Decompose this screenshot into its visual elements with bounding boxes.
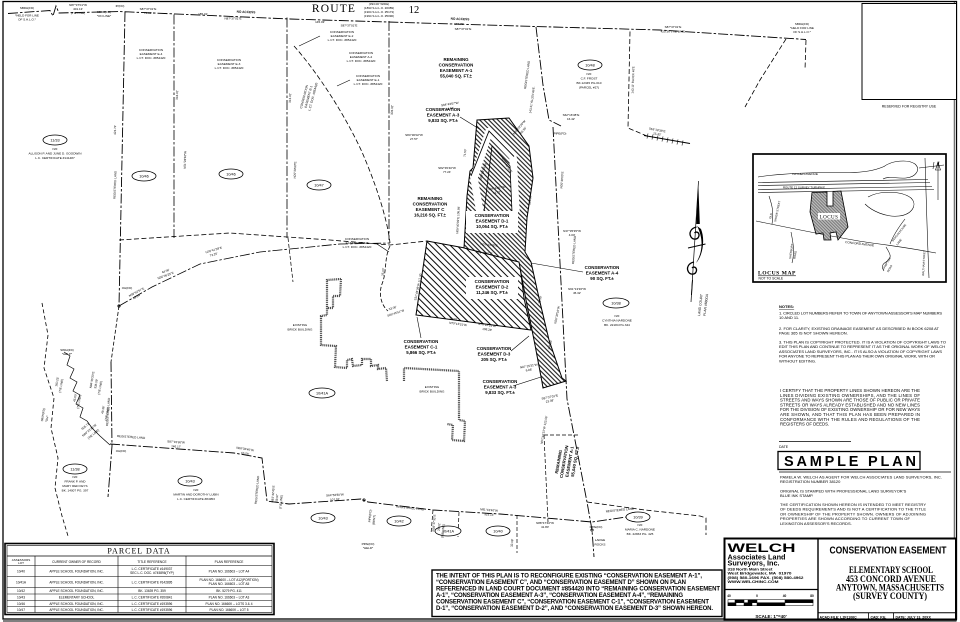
svg-text:10/47: 10/47 <box>314 184 324 188</box>
svg-text:THE INTENT OF THIS PLAN IS TO: THE INTENT OF THIS PLAN IS TO RECONFIGUR… <box>436 574 702 580</box>
svg-text:77.24′: 77.24′ <box>443 170 452 174</box>
svg-text:EASEMENT C-1: EASEMENT C-1 <box>405 345 438 350</box>
svg-text:LARGE: LARGE <box>595 538 606 542</box>
svg-text:25.00′: 25.00′ <box>381 267 386 276</box>
svg-text:BK. 5279 PG. 411: BK. 5279 PG. 411 <box>216 589 242 593</box>
svg-text:NO ACCESS: NO ACCESS <box>451 17 470 22</box>
svg-text:L.C. CERTIFICATE #193596: L.C. CERTIFICATE #193596 <box>132 608 173 612</box>
svg-text:420.36′ (TIE LINE): 420.36′ (TIE LINE) <box>661 30 686 34</box>
svg-text:318.01′: 318.01′ <box>175 90 179 100</box>
svg-text:PIPE(FD): PIPE(FD) <box>554 132 567 136</box>
svg-text:80: 80 <box>810 594 814 598</box>
svg-text:10/46: 10/46 <box>226 173 236 177</box>
svg-text:ROUTE: ROUTE <box>312 3 356 15</box>
svg-text:10/43: 10/43 <box>318 517 328 521</box>
svg-text:(PARCEL #27): (PARCEL #27) <box>579 86 599 90</box>
svg-text:DATE: JULY 13, 20XX: DATE: JULY 13, 20XX <box>896 615 932 619</box>
svg-text:APPLE SCHOOL FOUNDATION, INC.: APPLE SCHOOL FOUNDATION, INC. <box>49 580 103 584</box>
svg-text:10/38: 10/38 <box>611 302 621 306</box>
svg-text:205 SQ. FT.±: 205 SQ. FT.± <box>481 357 507 362</box>
svg-text:45.32′: 45.32′ <box>573 291 582 295</box>
svg-text:*HELP*: *HELP* <box>62 352 73 356</box>
svg-text:REMAINING: REMAINING <box>417 196 443 201</box>
svg-text:145.03′: 145.03′ <box>315 20 325 24</box>
svg-text:10/41A: 10/41A <box>16 580 27 584</box>
svg-text:APPLE SCHOOL FOUNDATION, INC.: APPLE SCHOOL FOUNDATION, INC. <box>49 608 103 612</box>
svg-text:EASEMENT D-1: EASEMENT D-1 <box>476 219 509 224</box>
svg-text:TITLE REFERENCE: TITLE REFERENCE <box>137 560 166 564</box>
svg-text:ALLISON P. AND JUNE D. GOODWIN: ALLISON P. AND JUNE D. GOODWIN <box>29 152 82 156</box>
svg-text:NO ACCESS: NO ACCESS <box>237 10 256 15</box>
svg-text:10/42: 10/42 <box>17 589 25 593</box>
svg-text:1. CIRCLED LOT NUMBERS REFER T: 1. CIRCLED LOT NUMBERS REFER TO TOWN OF … <box>779 311 942 316</box>
svg-text:N/F: N/F <box>587 72 592 76</box>
svg-text:D-1”, “CONSERVATION EASEMENT D: D-1”, “CONSERVATION EASEMENT D-2”, AND “… <box>436 606 713 612</box>
svg-text:CONSERVATION: CONSERVATION <box>404 339 439 344</box>
svg-text:BK. 22833 PG. 425: BK. 22833 PG. 425 <box>627 532 654 536</box>
svg-text:NOT TO SCALE: NOT TO SCALE <box>759 277 784 281</box>
svg-text:10/40: 10/40 <box>493 530 503 534</box>
svg-text:PAGE 365 IS NOT SHOWN HEREON.: PAGE 365 IS NOT SHOWN HEREON. <box>779 331 848 336</box>
svg-text:APPLE SCHOOL FOUNDATION, INC.: APPLE SCHOOL FOUNDATION, INC. <box>49 602 103 606</box>
svg-text:CONSERVATION: CONSERVATION <box>483 379 518 384</box>
svg-text:55,040 SQ. FT.±: 55,040 SQ. FT.± <box>440 74 473 79</box>
svg-text:L.CT. DOC. #854420: L.CT. DOC. #854420 <box>137 56 166 60</box>
svg-text:10/47: 10/47 <box>17 608 25 612</box>
svg-text:(TIE LINE): (TIE LINE) <box>71 11 85 15</box>
svg-text:REGISTRATION NUMBER 38120: REGISTRATION NUMBER 38120 <box>780 479 841 484</box>
svg-text:PLAN NO. 166603 – LOT A5: PLAN NO. 166603 – LOT A5 <box>209 582 250 586</box>
svg-text:9,833 SQ. FT.±: 9,833 SQ. FT.± <box>485 390 515 395</box>
svg-text:HAYDEN AVENUE: HAYDEN AVENUE <box>792 172 818 176</box>
svg-text:5,866 SQ. FT.±: 5,866 SQ. FT.± <box>406 350 436 355</box>
svg-text:303.32′: 303.32′ <box>390 105 394 115</box>
svg-text:SAMPLE PLAN: SAMPLE PLAN <box>784 454 919 470</box>
svg-text:BRICK BUILDING: BRICK BUILDING <box>288 328 314 332</box>
svg-text:CYNTHIA NARDONE: CYNTHIA NARDONE <box>602 319 632 323</box>
svg-text:(SURVEY COUNTY): (SURVEY COUNTY) <box>853 591 927 601</box>
svg-text:40: 40 <box>727 594 731 598</box>
svg-text:ACAD FILE: L2F1106C: ACAD FILE: L2F1106C <box>820 615 858 619</box>
svg-text:SBDH(FD): SBDH(FD) <box>20 6 34 10</box>
svg-text:EXISTING: EXISTING <box>425 385 440 389</box>
svg-text:N87°37′01″E: N87°37′01″E <box>224 17 241 21</box>
svg-text:10/43: 10/43 <box>17 596 25 600</box>
svg-text:10/42: 10/42 <box>394 520 404 524</box>
svg-text:12: 12 <box>409 5 420 16</box>
svg-text:EASEMENT A-1: EASEMENT A-1 <box>440 68 473 73</box>
svg-text:BRICK BUILDING: BRICK BUILDING <box>420 390 446 394</box>
svg-text:EASEMENT D-3: EASEMENT D-3 <box>478 352 511 357</box>
svg-text:EASEMENT A-3: EASEMENT A-3 <box>484 385 517 390</box>
svg-text:CONSERVATION: CONSERVATION <box>426 107 461 112</box>
svg-text:90 SQ. FT.±: 90 SQ. FT.± <box>590 276 614 281</box>
svg-text:RESERVED FOR REGISTRY USE: RESERVED FOR REGISTRY USE <box>882 105 937 109</box>
svg-text:DATE: DATE <box>779 445 789 449</box>
svg-text:PLAN NO. 166603 – LOT A3: PLAN NO. 166603 – LOT A3 <box>209 596 250 600</box>
svg-text:10/48: 10/48 <box>585 64 595 68</box>
svg-text:BK. 14007 PG. 397: BK. 14007 PG. 397 <box>62 489 89 493</box>
svg-text:CAD: P.E.: CAD: P.E. <box>871 615 887 619</box>
svg-text:41.80′: 41.80′ <box>541 525 550 529</box>
svg-text:N/F: N/F <box>638 523 643 527</box>
svg-text:(1994 S.H.L.O. #5090): (1994 S.H.L.O. #5090) <box>364 14 394 18</box>
svg-text:N/F: N/F <box>53 147 58 151</box>
svg-text:NOTES:: NOTES: <box>779 304 794 309</box>
svg-text:10/43: 10/43 <box>185 480 195 484</box>
svg-text:L.CT. DOC. #854420: L.CT. DOC. #854420 <box>354 82 383 86</box>
svg-text:WITHOUT EDITING.: WITHOUT EDITING. <box>779 358 816 363</box>
svg-text:185.01′: 185.01′ <box>198 12 208 16</box>
svg-text:MARIA C. NARDONE: MARIA C. NARDONE <box>625 528 655 532</box>
svg-text:32.08′: 32.08′ <box>510 538 515 547</box>
svg-text:CONSERVATION EASEMENT C”, “CON: CONSERVATION EASEMENT C”, “CONSERVATION … <box>436 600 709 606</box>
svg-text:MARTIN AND DOROTHY LUBIN: MARTIN AND DOROTHY LUBIN <box>173 493 218 497</box>
svg-text:APPLE SCHOOL FOUNDATION, INC.: APPLE SCHOOL FOUNDATION, INC. <box>49 589 103 593</box>
svg-text:CONSERVATION: CONSERVATION <box>475 213 510 218</box>
svg-text:27.57′: 27.57′ <box>410 137 419 141</box>
svg-text:L.C. CERTIFICATE #84953: L.C. CERTIFICATE #84953 <box>177 497 215 501</box>
svg-text:LOT: LOT <box>18 561 24 565</box>
svg-text:10/46: 10/46 <box>17 602 25 606</box>
svg-text:C.F. FROST: C.F. FROST <box>581 77 598 81</box>
svg-text:10/46: 10/46 <box>139 175 149 179</box>
svg-text:L.CT. DOC. #854420: L.CT. DOC. #854420 <box>347 59 376 63</box>
svg-text:10/39: 10/39 <box>633 516 643 520</box>
svg-text:313.01′: 313.01′ <box>288 93 292 103</box>
svg-text:MARY RED FEYS: MARY RED FEYS <box>62 484 87 488</box>
svg-text:40: 40 <box>783 594 787 598</box>
svg-text:PLAN NO. 16660K – LOT 5: PLAN NO. 16660K – LOT 5 <box>209 608 248 612</box>
svg-text:CONSERVATION: CONSERVATION <box>585 265 620 270</box>
svg-text:“CONSERVATION EASEMENT C”, AND: “CONSERVATION EASEMENT C”, AND “CONSERVA… <box>436 580 686 586</box>
svg-text:N01°28′30″W: N01°28′30″W <box>183 151 188 169</box>
svg-text:ELEMENTARY SCHOOL: ELEMENTARY SCHOOL <box>59 596 95 600</box>
svg-text:L.CT. DOC. #854420: L.CT. DOC. #854420 <box>215 66 244 70</box>
svg-text:146.17′: 146.17′ <box>171 444 181 449</box>
svg-text:L.C. CERTIFICATE #200841: L.C. CERTIFICATE #200841 <box>132 596 173 600</box>
svg-text:REMAINING: REMAINING <box>443 57 469 62</box>
svg-text:10/40: 10/40 <box>17 569 25 573</box>
svg-text:PARCEL DATA: PARCEL DATA <box>107 547 170 556</box>
svg-text:9,833 SQ. FT.±: 9,833 SQ. FT.± <box>428 118 458 123</box>
svg-text:BLUE INK STAMP.: BLUE INK STAMP. <box>780 493 813 498</box>
svg-text:11/38: 11/38 <box>70 468 79 472</box>
svg-text:L.CT. DOC. #854420: L.CT. DOC. #854420 <box>343 245 372 249</box>
svg-text:4.00′: 4.00′ <box>569 233 576 237</box>
svg-text:ROUTE 12 SURVEY TURNPIKE: ROUTE 12 SURVEY TURNPIKE <box>783 186 825 190</box>
svg-text:107.53′: 107.53′ <box>330 497 340 502</box>
svg-text:LEXINGTON ASSESSOR’S RECORDS.: LEXINGTON ASSESSOR’S RECORDS. <box>780 521 852 526</box>
svg-text:PIPE(FD): PIPE(FD) <box>590 525 603 529</box>
svg-text:L.CT. DOC. #854420: L.CT. DOC. #854420 <box>328 38 357 42</box>
svg-text:S87°37′01″E: S87°37′01″E <box>341 24 358 28</box>
svg-text:CONSERVATION: CONSERVATION <box>413 202 448 207</box>
svg-text:423.74′: 423.74′ <box>113 125 117 135</box>
svg-text:PLAN REFERENCE: PLAN REFERENCE <box>215 560 244 564</box>
svg-text:11/33: 11/33 <box>50 139 59 143</box>
svg-text:REGISTERS OF DEEDS.: REGISTERS OF DEEDS. <box>780 422 829 427</box>
svg-text:S87°37′01″E: S87°37′01″E <box>665 25 682 29</box>
svg-text:N05°30′00″E: N05°30′00″E <box>293 161 298 178</box>
svg-text:BK. 22184 PG.344: BK. 22184 PG.344 <box>604 323 630 327</box>
svg-text:CURRENT OWNER OF RECORD: CURRENT OWNER OF RECORD <box>52 560 101 564</box>
svg-text:PLAN NO. 16660K – LOTS 3 & 4: PLAN NO. 16660K – LOTS 3 & 4 <box>206 602 253 606</box>
svg-text:EASEMENT C: EASEMENT C <box>416 207 446 212</box>
svg-text:76.00′: 76.00′ <box>144 11 153 15</box>
svg-text:71.50′: 71.50′ <box>463 148 468 157</box>
svg-text:16.42′: 16.42′ <box>567 117 576 121</box>
svg-text:CONSERVATION: CONSERVATION <box>477 346 512 351</box>
svg-text:EASEMENT D-2: EASEMENT D-2 <box>476 285 509 290</box>
svg-text:APPLE SCHOOL FOUNDATION, INC.: APPLE SCHOOL FOUNDATION, INC. <box>49 569 103 573</box>
svg-text:WWW.WELCHINC.COM: WWW.WELCHINC.COM <box>728 579 780 584</box>
svg-text:LOCUS: LOCUS <box>820 216 839 221</box>
svg-text:OH(FD): OH(FD) <box>116 449 127 453</box>
svg-text:145.52′: 145.52′ <box>528 195 533 205</box>
svg-text:L.C. CERTIFICATE #193596: L.C. CERTIFICATE #193596 <box>132 602 173 606</box>
svg-text:FRANK P. AND: FRANK P. AND <box>64 480 86 484</box>
svg-text:10,064 SQ. FT.±: 10,064 SQ. FT.± <box>476 224 509 229</box>
svg-text:BK.12345 PG.010: BK.12345 PG.010 <box>577 81 602 85</box>
svg-text:PLAN NO. 166603 – LOT A4: PLAN NO. 166603 – LOT A4 <box>209 569 250 573</box>
svg-text:16,216 SQ. FT.±: 16,216 SQ. FT.± <box>414 213 447 218</box>
svg-text:EASEMENT A-3: EASEMENT A-3 <box>427 113 460 118</box>
svg-text:S87°37′01″E: S87°37′01″E <box>455 27 472 31</box>
svg-text:SEC L.C. DOC. #745896(TYP): SEC L.C. DOC. #745896(TYP) <box>130 571 174 575</box>
svg-text:L.C. CERTIFICATE #141487: L.C. CERTIFICATE #141487 <box>35 156 75 160</box>
svg-text:WELCH: WELCH <box>728 541 796 555</box>
svg-text:11,246 SQ. FT.±: 11,246 SQ. FT.± <box>476 290 508 295</box>
svg-text:0: 0 <box>756 594 758 598</box>
svg-text:ROCKS: ROCKS <box>594 543 605 547</box>
svg-text:L.C. CERTIFICATE #142895: L.C. CERTIFICATE #142895 <box>132 580 173 584</box>
svg-text:EXISTING: EXISTING <box>293 323 308 327</box>
svg-text:N/F: N/F <box>194 488 199 492</box>
svg-text:*HELD*: *HELD* <box>363 546 374 550</box>
svg-text:CONSERVATION: CONSERVATION <box>475 279 510 284</box>
svg-text:BK. 13639 PG. 359: BK. 13639 PG. 359 <box>138 589 166 593</box>
svg-text:OF S.H.L.O.*: OF S.H.L.O.* <box>793 30 812 34</box>
svg-text:OF S.H.L.O.*: OF S.H.L.O.* <box>18 18 37 22</box>
svg-text:10 AND 11.: 10 AND 11. <box>779 315 799 320</box>
svg-text:174.70′: 174.70′ <box>454 22 464 26</box>
svg-text:IP(FD): IP(FD) <box>116 4 125 8</box>
svg-text:EASEMENT A-4: EASEMENT A-4 <box>586 271 619 276</box>
svg-text:CONSERVATION EASEMENT: CONSERVATION EASEMENT <box>830 546 947 557</box>
svg-text:OH(FD): OH(FD) <box>122 286 133 290</box>
svg-text:N/F: N/F <box>73 475 78 479</box>
svg-text:10/41A: 10/41A <box>316 392 329 396</box>
svg-text:A-1”, “CONSERVATION EASEMENT A: A-1”, “CONSERVATION EASEMENT A-3”, “CONS… <box>436 593 683 599</box>
svg-text:*ON LINE*: *ON LINE* <box>97 14 112 18</box>
svg-text:SCALE: 1″=40′: SCALE: 1″=40′ <box>755 614 786 619</box>
svg-text:CONSERVATION: CONSERVATION <box>439 63 474 68</box>
svg-text:REFERENCED IN LAND COURT DOCUM: REFERENCED IN LAND COURT DOCUMENT #85442… <box>436 587 720 593</box>
svg-text:N/F: N/F <box>615 314 620 318</box>
